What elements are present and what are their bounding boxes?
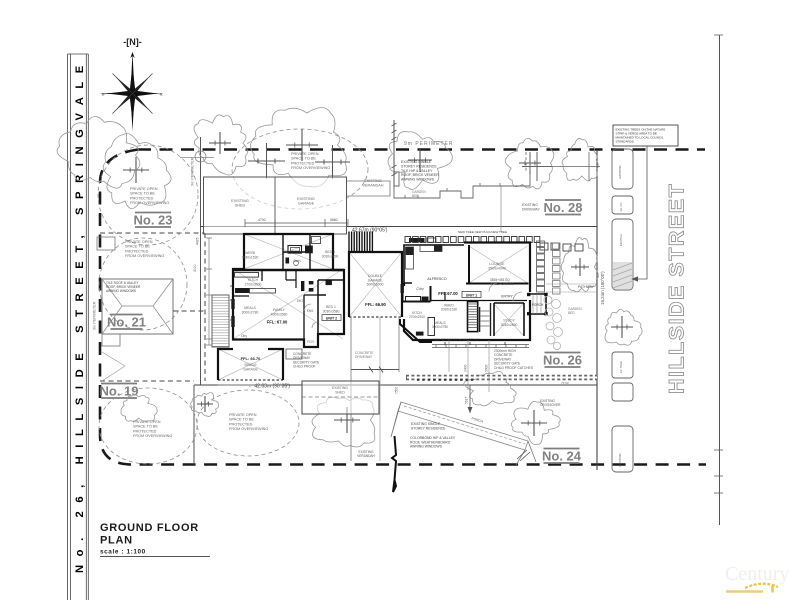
svg-text:6000x6000: 6000x6000	[367, 283, 384, 287]
svg-text:3030x2890: 3030x2890	[501, 323, 518, 327]
svg-text:VERANDAH: VERANDAH	[357, 454, 375, 458]
svg-text:EX. TREE: EX. TREE	[619, 361, 623, 373]
svg-text:ALFRESCO: ALFRESCO	[427, 277, 447, 281]
svg-text:4000: 4000	[193, 264, 197, 272]
svg-text:4425: 4425	[196, 237, 200, 245]
svg-text:FFL:67.00: FFL:67.00	[438, 291, 458, 296]
svg-text:FFL: 66.90: FFL: 66.90	[365, 302, 386, 307]
svg-text:HILLSIDE STREET: HILLSIDE STREET	[665, 183, 689, 394]
svg-text:STANDARDS: STANDARDS	[616, 140, 634, 144]
svg-text:PROTECTED: PROTECTED	[130, 196, 154, 200]
svg-text:5860: 5860	[330, 218, 338, 222]
svg-text:FFL: 66.70: FFL: 66.70	[241, 356, 262, 361]
svg-text:SHED: SHED	[335, 390, 345, 394]
svg-text:PRIVATE OPEN: PRIVATE OPEN	[291, 152, 319, 156]
svg-text:EXISTING: EXISTING	[618, 165, 622, 178]
svg-text:PRIVATE OPEN: PRIVATE OPEN	[133, 420, 161, 424]
svg-text:SPACE TO BE: SPACE TO BE	[133, 425, 158, 429]
svg-text:VERANDAH: VERANDAH	[362, 184, 383, 188]
svg-text:PROTECTED: PROTECTED	[125, 249, 149, 253]
svg-text:PRIVATE OPEN: PRIVATE OPEN	[130, 187, 158, 191]
svg-text:EXISTING: EXISTING	[619, 234, 623, 246]
svg-text:TILE HIP & VALLEY: TILE HIP & VALLEY	[401, 169, 433, 173]
svg-text:2700x3000: 2700x3000	[245, 282, 262, 286]
svg-text:9m PERIMETER: 9m PERIMETER	[404, 141, 454, 147]
svg-text:9m PERIMETER: 9m PERIMETER	[93, 301, 97, 330]
svg-text:SPACE TO BE: SPACE TO BE	[130, 192, 155, 196]
svg-text:AWNING WINDOWS: AWNING WINDOWS	[410, 445, 443, 449]
svg-text:1810 REF 900 1810 W 1510 BF: 1810 REF 900 1810 W 1510 BFD 600	[434, 338, 480, 342]
svg-text:GARAGE: GARAGE	[298, 202, 315, 206]
svg-text:FROM OVERVIEWING: FROM OVERVIEWING	[125, 254, 164, 258]
svg-text:4000x3580: 4000x3580	[271, 312, 288, 316]
svg-text:3030x3580: 3030x3580	[323, 309, 340, 313]
svg-text:Bath: Bath	[294, 259, 301, 263]
svg-text:STOREY RESIDENCE: STOREY RESIDENCE	[411, 426, 446, 430]
svg-text:5617: 5617	[465, 397, 469, 404]
svg-text:← 42.63m (90°05'): ← 42.63m (90°05')	[248, 384, 290, 390]
svg-text:No. 23: No. 23	[133, 213, 172, 228]
svg-text:FROM OVERVIEWING: FROM OVERVIEWING	[130, 201, 169, 205]
svg-text:2030x1530: 2030x1530	[441, 308, 457, 312]
svg-text:LOUNGE: LOUNGE	[489, 262, 505, 266]
svg-text:ROOF, BRICK VENEER: ROOF, BRICK VENEER	[401, 173, 439, 177]
svg-text:3000x2780: 3000x2780	[242, 310, 259, 314]
svg-text:3030x2890: 3030x2890	[322, 254, 339, 258]
svg-text:Century: Century	[725, 563, 789, 585]
svg-text:GROUND FLOOR: GROUND FLOOR	[100, 522, 199, 534]
svg-text:3400: 3400	[464, 364, 468, 372]
svg-text:EX. CO: EX. CO	[619, 203, 623, 212]
svg-text:PROTECTED: PROTECTED	[291, 161, 315, 165]
svg-text:PROTECTED: PROTECTED	[133, 429, 157, 433]
svg-text:EXISTING: EXISTING	[231, 199, 249, 203]
svg-text:2700x2510: 2700x2510	[409, 315, 425, 319]
svg-text:-[N]-: -[N]-	[123, 37, 142, 47]
svg-text:EXISTING: EXISTING	[297, 197, 315, 201]
svg-text:No. 26: No. 26	[543, 353, 582, 368]
svg-text:EXISTING SINGLE: EXISTING SINGLE	[401, 160, 432, 164]
svg-text:PRIVATE OPEN: PRIVATE OPEN	[125, 240, 153, 244]
svg-text:PROTECTED: PROTECTED	[229, 422, 253, 426]
svg-text:7500: 7500	[395, 387, 399, 394]
svg-text:ENS: ENS	[307, 309, 314, 313]
svg-text:No. 24: No. 24	[542, 449, 582, 464]
svg-text:C'dry: C'dry	[416, 287, 424, 291]
svg-text:Oby: Oby	[241, 334, 247, 338]
svg-text:DRIVEWAY: DRIVEWAY	[355, 355, 373, 359]
svg-text:3000x2780: 3000x2780	[432, 325, 448, 329]
svg-text:UNIT 2: UNIT 2	[326, 316, 337, 320]
svg-text:EXISTING: EXISTING	[364, 179, 382, 183]
svg-text:CHILD PROOF: CHILD PROOF	[293, 365, 316, 369]
svg-text:PRIVATE OPEN: PRIVATE OPEN	[229, 413, 257, 417]
svg-text:NEW TREE NEW PLGS NEW TREE: NEW TREE NEW PLGS NEW TREE	[458, 230, 507, 234]
svg-text:PLAN: PLAN	[100, 535, 133, 547]
svg-text:No. 26, HILLSIDE STREET, SPRIN: No. 26, HILLSIDE STREET, SPRINGVALE	[74, 57, 86, 573]
svg-text:PORCH: PORCH	[532, 303, 544, 307]
svg-text:SPACE TO BE: SPACE TO BE	[125, 245, 150, 249]
svg-text:FROM OVERVIEWING: FROM OVERVIEWING	[133, 434, 172, 438]
svg-text:15.24m (180°00'): 15.24m (180°00')	[600, 271, 605, 305]
svg-text:GARAGE: GARAGE	[243, 367, 258, 371]
svg-text:UNIT 1: UNIT 1	[466, 293, 477, 297]
svg-text:No. 28: No. 28	[543, 200, 582, 215]
svg-text:SPACE TO BE: SPACE TO BE	[291, 157, 316, 161]
svg-text:DRIVEWAY: DRIVEWAY	[522, 207, 540, 211]
svg-text:PATHWAY: PATHWAY	[578, 285, 595, 289]
svg-text:ENT: ENT	[297, 299, 303, 303]
svg-text:CROSSOVER: CROSSOVER	[540, 403, 561, 407]
svg-text:72.50: 72.50	[561, 381, 569, 385]
svg-text:CHILD PROOF CATCHES: CHILD PROOF CATCHES	[494, 366, 534, 370]
svg-text:3030x1530: 3030x1530	[242, 255, 259, 259]
svg-text:BED: BED	[412, 194, 419, 198]
svg-text:3500x4340: 3500x4340	[488, 267, 506, 271]
svg-text:AWNING WINDOWS: AWNING WINDOWS	[401, 178, 435, 182]
svg-text:No. 21: No. 21	[107, 315, 146, 330]
svg-text:BED: BED	[568, 311, 575, 315]
svg-text:AWNING WINDOWS: AWNING WINDOWS	[106, 289, 136, 293]
svg-text:No. 19: No. 19	[99, 384, 138, 399]
svg-text:FROM OVERVIEWING: FROM OVERVIEWING	[229, 427, 268, 431]
svg-text:EXISTING: EXISTING	[618, 453, 622, 466]
svg-text:ENTRY: ENTRY	[501, 295, 513, 299]
svg-text:SPACE TO BE: SPACE TO BE	[229, 418, 254, 422]
svg-text:5000: 5000	[485, 364, 489, 372]
svg-text:FOY.: FOY.	[307, 340, 315, 344]
svg-text:FROM OVERVIEWING: FROM OVERVIEWING	[291, 166, 330, 170]
svg-text:4700: 4700	[258, 218, 266, 222]
svg-text:STOREY RESIDENCE: STOREY RESIDENCE	[401, 164, 437, 168]
svg-text:FFL: 67.00: FFL: 67.00	[267, 320, 288, 325]
svg-text:SHED: SHED	[235, 204, 246, 208]
svg-text:scale : 1:100: scale : 1:100	[100, 549, 146, 556]
